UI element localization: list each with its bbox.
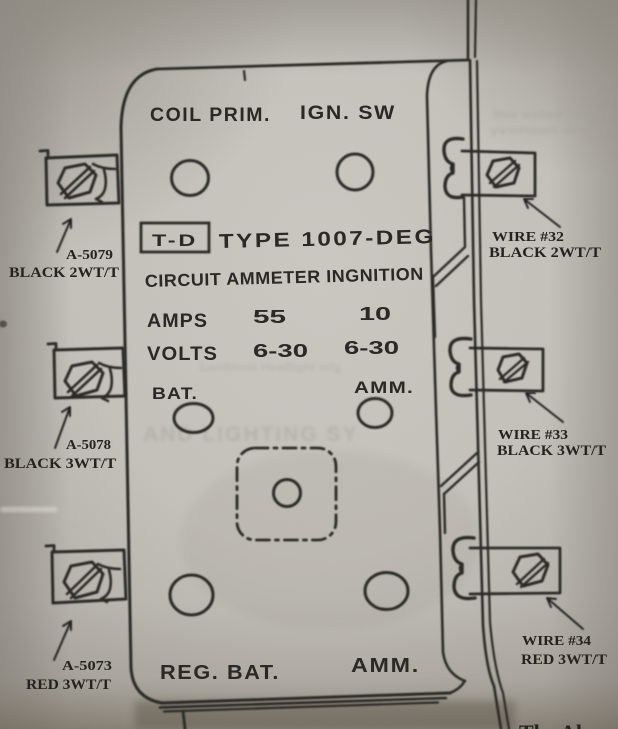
svg-text:RED 3WT/T: RED 3WT/T — [521, 652, 607, 668]
svg-text:yvwnsws wmt el: yvwnsws wmt el — [490, 125, 612, 137]
svg-text:T-D: T-D — [152, 231, 198, 250]
svg-text:BLACK 3WT/T: BLACK 3WT/T — [4, 456, 116, 472]
svg-text:BAT.: BAT. — [152, 385, 198, 403]
svg-text:BLACK 2WT/T: BLACK 2WT/T — [489, 245, 601, 261]
svg-text:6-30: 6-30 — [253, 340, 308, 361]
svg-text:VOLTS: VOLTS — [147, 344, 218, 365]
svg-text:A-5073: A-5073 — [62, 659, 112, 674]
svg-text:A-5078: A-5078 — [66, 438, 111, 453]
svg-text:IGN. SW: IGN. SW — [300, 103, 396, 124]
svg-text:AMM.: AMM. — [351, 655, 420, 677]
svg-text:A-5079: A-5079 — [66, 248, 113, 263]
svg-text:REG. BAT.: REG. BAT. — [160, 661, 280, 684]
svg-text:Landmost Headlight mfg: Landmost Headlight mfg — [200, 360, 341, 374]
svg-text:WIRE #34: WIRE #34 — [522, 634, 591, 649]
svg-text:BLACK 3WT/T: BLACK 3WT/T — [497, 443, 606, 459]
svg-text:10: 10 — [359, 303, 391, 324]
svg-text:AND LIGHTING SY: AND LIGHTING SY — [143, 423, 359, 446]
svg-text:COIL PRIM.: COIL PRIM. — [150, 105, 271, 126]
svg-text:AMM.: AMM. — [354, 379, 414, 397]
svg-text:6-30: 6-30 — [344, 337, 399, 358]
svg-text:AMPS: AMPS — [147, 311, 208, 332]
svg-text:WIRE #32: WIRE #32 — [492, 230, 564, 245]
svg-text:55: 55 — [253, 306, 286, 327]
svg-text:The Al: The Al — [519, 720, 582, 729]
svg-text:RED 3WT/T: RED 3WT/T — [26, 677, 111, 693]
svg-text:WIRE #33: WIRE #33 — [498, 428, 568, 443]
svg-text:tou vxted tednd: tou vxted tednd — [493, 109, 611, 121]
svg-text:BLACK 2WT/T: BLACK 2WT/T — [9, 265, 119, 281]
